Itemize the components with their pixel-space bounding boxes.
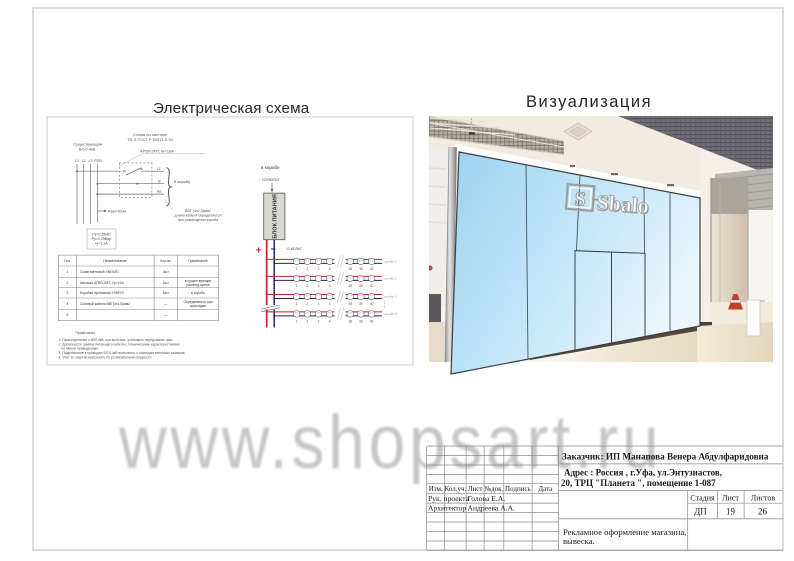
svg-text:39: 39 [359,320,363,324]
svg-text:1шт: 1шт [163,291,170,295]
svg-text:1: 1 [296,284,298,288]
svg-text:1. Присоединение к ВЛ0,4кВ, пр: 1. Присоединение к ВЛ0,4кВ, при монтаже,… [59,338,174,342]
svg-text:1: 1 [296,267,298,271]
svg-text:Коробка протяжная У99ЕУ2: Коробка протяжная У99ЕУ2 [80,291,124,295]
svg-text:длина кабеля определяется: длина кабеля определяется [175,214,222,218]
svg-text:40: 40 [370,302,374,306]
svg-text:не менее приведённых.: не менее приведённых. [62,347,99,351]
svg-text:+: + [256,245,262,256]
svg-text:39: 39 [359,284,363,288]
svg-text:3: 3 [318,267,320,271]
svg-text:при размещении короба: при размещении короба [178,218,219,222]
svg-text:Кол.уч.: Кол.уч. [445,485,467,493]
svg-text:L1: L1 [75,159,79,163]
svg-text:Заказчик: ИП Манапова Венера: Заказчик: ИП Манапова Венера Абдулфаридо… [562,452,769,462]
svg-text:БЛОК ПИТАНИЯ: БЛОК ПИТАНИЯ [273,194,279,238]
svg-text:26: 26 [758,507,768,517]
svg-text:—: — [164,313,168,317]
svg-text:5: 5 [67,313,69,317]
svg-text:Лист: Лист [468,485,483,493]
svg-text:Лист: Лист [722,494,739,503]
svg-text:L2: L2 [82,159,86,163]
svg-text:Подпись: Подпись [505,485,531,493]
svg-text:Примечания:: Примечания: [76,331,97,335]
svg-text:~ 220 ВОЛЬТ: ~ 220 ВОЛЬТ [259,178,279,182]
svg-text:в коробе: в коробе [261,165,280,170]
svg-text:Ру=0,25Вар: Ру=0,25Вар [92,237,112,241]
svg-text:3: 3 [318,302,320,306]
svg-text:Адрес : Россия , г.Уфа, ул.Энт: Адрес : Россия , г.Уфа, ул.Энтузиастов, [564,468,722,478]
svg-text:К коробу: К коробу [174,179,190,184]
svg-text:19: 19 [726,507,736,517]
svg-text:−: − [271,244,276,254]
svg-text:ДП: ДП [694,507,707,517]
svg-text:3: 3 [67,291,69,295]
svg-text:Андреева А.А.: Андреева А.А. [468,504,516,513]
svg-text:шлейф N: шлейф N [384,312,397,316]
svg-text:шлейф 1: шлейф 1 [384,260,397,264]
svg-text:40: 40 [370,284,374,288]
svg-text:L1: L1 [157,167,161,171]
svg-text:ВВГ (3х2,5)мм2: ВВГ (3х2,5)мм2 [185,209,211,213]
svg-text:L3: L3 [89,159,93,163]
svg-text:в коробе: в коробе [191,291,205,295]
svg-text:2: 2 [307,267,309,271]
svg-text:—: — [164,302,168,306]
svg-text:3: 3 [318,284,320,288]
svg-text:1шт: 1шт [163,281,170,285]
svg-text:40: 40 [370,320,374,324]
svg-text:PEN: PEN [94,159,102,163]
svg-text:1: 1 [296,302,298,306]
svg-text:Примечание: Примечание [188,259,208,263]
svg-text:Дата: Дата [538,485,553,493]
svg-text:4: 4 [329,302,331,306]
svg-text:39: 39 [359,302,363,306]
svg-text:Силовой кабель ВВГ(3х1,5)мм2: Силовой кабель ВВГ(3х1,5)мм2 [80,302,130,306]
svg-text:Кол-во: Кол-во [160,259,171,263]
svg-text:Наименование: Наименование [103,259,127,263]
svg-text:PE: PE [157,190,162,194]
svg-text:вывеска.: вывеска. [563,536,595,546]
svg-text:4. Учет эл.энергии выполнить п: 4. Учет эл.энергии выполнить по установл… [59,356,152,360]
svg-text:TN-S ГОСТ Р 50571.2-94: TN-S ГОСТ Р 50571.2-94 [127,137,174,142]
svg-text:2: 2 [307,284,309,288]
svg-text:Рук. проекта: Рук. проекта [428,494,470,503]
svg-text:№док.: №док. [484,485,503,493]
svg-text:Листов: Листов [751,494,776,503]
svg-text:АП50-2МТ, Iн=16А: АП50-2МТ, Iн=16А [140,149,174,154]
svg-text:ВЛ-0,4кВ.: ВЛ-0,4кВ. [79,147,97,152]
svg-text:38: 38 [348,302,352,306]
svg-text:20, ТРЦ "Планета ", помещение: 20, ТРЦ "Планета ", помещение 1-087 [561,478,716,488]
svg-text:39: 39 [359,267,363,271]
svg-text:Сжим винтовой У867кП1: Сжим винтовой У867кП1 [80,270,119,274]
svg-text:38: 38 [348,267,352,271]
svg-text:4: 4 [329,320,331,324]
svg-text:Стадия: Стадия [690,494,715,503]
svg-text:4: 4 [67,302,69,306]
svg-text:Поз.: Поз. [64,259,71,263]
svg-text:1: 1 [67,270,69,274]
svg-text:3: 3 [318,320,320,324]
svg-text:1: 1 [296,320,298,324]
svg-text:прокладке: прокладке [190,304,206,308]
svg-text:2: 2 [307,320,309,324]
svg-text:распред.щитке: распред.щитке [186,283,210,287]
svg-text:шлейф 3: шлейф 3 [384,295,397,299]
svg-text:Iу=1,1А: Iу=1,1А [95,242,108,246]
svg-text:3. Подключение к проводам ВЛ-0: 3. Подключение к проводам ВЛ-0,4кВ выпол… [59,351,186,355]
svg-text:Rзаз=30ом: Rзаз=30ом [108,210,127,214]
svg-text:Изм.: Изм. [429,485,443,493]
svg-text:Архитектор: Архитектор [428,504,466,513]
svg-text:2: 2 [67,281,69,285]
svg-text:4: 4 [329,284,331,288]
svg-text:2: 2 [307,302,309,306]
svg-text:шлейф 2: шлейф 2 [384,277,397,281]
svg-text:Голова Е.А.: Голова Е.А. [468,494,506,503]
svg-text:Ру=0,25кВт: Ру=0,25кВт [92,233,111,237]
svg-text:40: 40 [370,267,374,271]
svg-text:2шт: 2шт [163,270,170,274]
svg-text:Автомат АП50-2МТ, Уу=16А: Автомат АП50-2МТ, Уу=16А [80,281,124,285]
svg-text:38: 38 [348,320,352,324]
svg-text:38: 38 [348,284,352,288]
svg-text:N: N [158,180,161,184]
svg-text:4: 4 [329,267,331,271]
svg-text:12 ВОЛЬТ: 12 ВОЛЬТ [286,247,302,251]
